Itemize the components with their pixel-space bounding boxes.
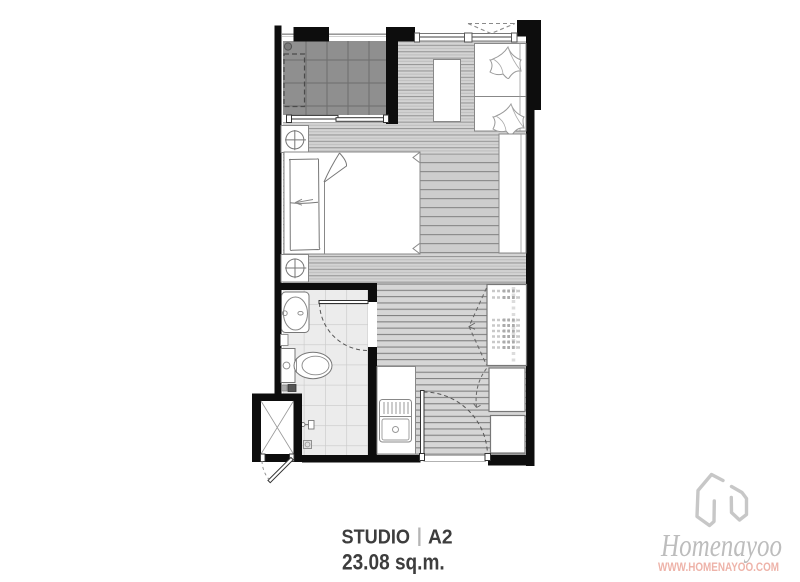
svg-text:STUDIO: STUDIO — [342, 527, 411, 549]
svg-text:23.08 sq.m.: 23.08 sq.m. — [342, 550, 445, 575]
svg-text:WWW.HOMENAYOO.COM: WWW.HOMENAYOO.COM — [658, 560, 779, 574]
svg-text:Homenayoo: Homenayoo — [660, 527, 782, 563]
svg-text:A2: A2 — [428, 527, 453, 549]
